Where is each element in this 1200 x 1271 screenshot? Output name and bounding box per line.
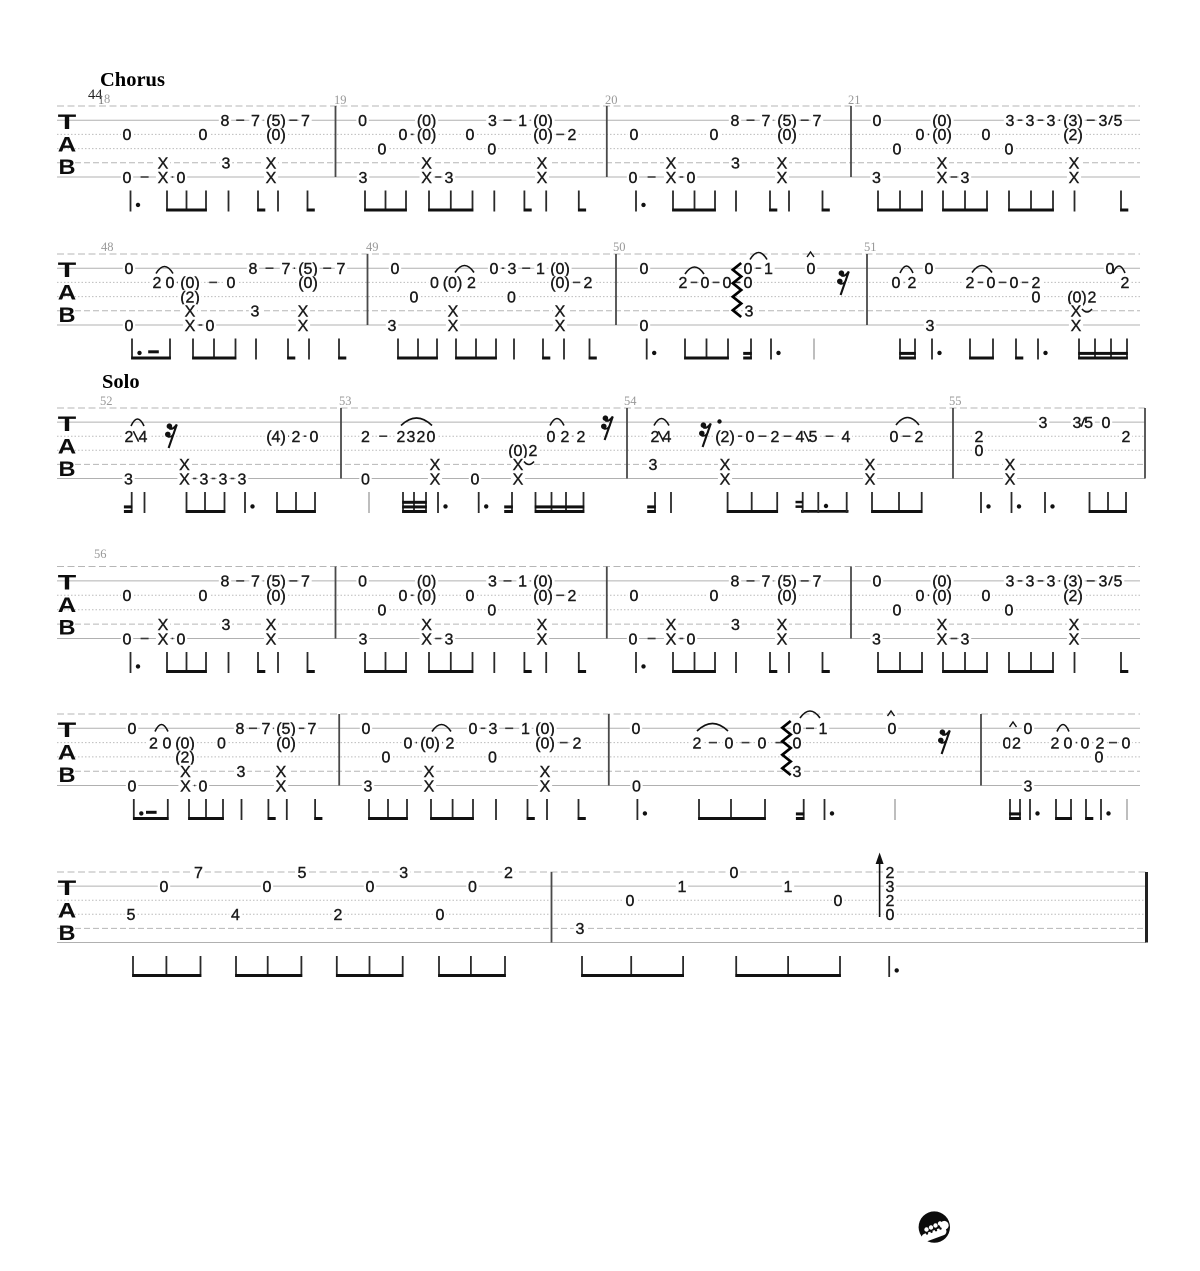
svg-text:3: 3 [872, 631, 881, 648]
svg-text:50: 50 [613, 240, 626, 254]
svg-text:X: X [865, 471, 876, 488]
svg-text:B: B [59, 616, 76, 640]
svg-text:0: 0 [487, 603, 496, 620]
svg-text:0: 0 [469, 721, 478, 738]
svg-text:3: 3 [1047, 574, 1056, 591]
svg-text:0: 0 [730, 865, 739, 882]
svg-text:54: 54 [624, 394, 637, 408]
svg-text:0: 0 [410, 289, 419, 306]
svg-text:(0): (0) [932, 127, 952, 144]
svg-text:2: 2 [577, 429, 586, 446]
svg-text:2: 2 [908, 275, 917, 292]
svg-text:1: 1 [678, 879, 687, 896]
svg-text:0: 0 [1005, 141, 1014, 158]
svg-text:X: X [937, 170, 948, 187]
svg-text:2: 2 [679, 275, 688, 292]
svg-text:(0): (0) [533, 127, 553, 144]
svg-text:7: 7 [194, 865, 203, 882]
svg-text:0: 0 [987, 275, 996, 292]
svg-text:(2): (2) [1063, 588, 1083, 605]
svg-text:X: X [777, 170, 788, 187]
svg-text:0: 0 [358, 113, 367, 130]
svg-text:X: X [555, 318, 566, 335]
svg-text:0: 0 [687, 631, 696, 648]
svg-text:0: 0 [916, 127, 925, 144]
svg-text:3: 3 [731, 156, 740, 173]
svg-text:0: 0 [547, 429, 556, 446]
svg-text:3: 3 [1024, 778, 1033, 795]
svg-text:51: 51 [864, 240, 877, 254]
svg-text:8: 8 [221, 574, 230, 591]
svg-text:X: X [540, 778, 551, 795]
svg-text:7: 7 [813, 113, 822, 130]
svg-text:3: 3 [251, 304, 260, 321]
svg-text:(4): (4) [266, 429, 286, 446]
svg-text:3: 3 [407, 429, 416, 446]
svg-text:0: 0 [404, 735, 413, 752]
svg-text:0: 0 [199, 127, 208, 144]
svg-text:X: X [537, 170, 548, 187]
svg-text:X: X [1005, 471, 1016, 488]
svg-text:0: 0 [366, 879, 375, 896]
svg-text:2: 2 [153, 275, 162, 292]
svg-text:0: 0 [125, 318, 134, 335]
svg-text:0: 0 [199, 588, 208, 605]
svg-text:X: X [298, 318, 309, 335]
svg-text:55: 55 [949, 394, 962, 408]
svg-text:8: 8 [249, 261, 258, 278]
svg-text:A: A [58, 435, 77, 459]
svg-text:A: A [58, 593, 77, 617]
svg-text:0: 0 [744, 275, 753, 292]
svg-text:(2): (2) [1063, 127, 1083, 144]
svg-text:B: B [59, 155, 76, 179]
svg-text:X: X [666, 631, 677, 648]
svg-text:0: 0 [128, 721, 137, 738]
svg-text:3: 3 [793, 764, 802, 781]
svg-text:0: 0 [391, 261, 400, 278]
svg-text:3: 3 [1026, 574, 1035, 591]
svg-text:B: B [59, 457, 76, 481]
svg-text:3: 3 [1026, 113, 1035, 130]
svg-text:Chorus: Chorus [100, 69, 165, 91]
svg-text:7: 7 [251, 113, 260, 130]
svg-text:X: X [777, 631, 788, 648]
svg-text:0: 0 [725, 735, 734, 752]
svg-text:0: 0 [892, 275, 901, 292]
svg-text:0: 0 [263, 879, 272, 896]
svg-text:0: 0 [886, 907, 895, 924]
svg-text:8: 8 [731, 574, 740, 591]
svg-text:1: 1 [819, 721, 828, 738]
svg-text:X: X [180, 778, 191, 795]
svg-text:2: 2 [584, 275, 593, 292]
svg-text:X: X [179, 471, 190, 488]
svg-text:0: 0 [378, 141, 387, 158]
svg-text:(0): (0) [266, 588, 286, 605]
svg-text:2: 2 [149, 735, 158, 752]
svg-text:7: 7 [308, 721, 317, 738]
svg-text:1: 1 [521, 721, 530, 738]
svg-text:2: 2 [1121, 275, 1130, 292]
svg-text:0: 0 [466, 127, 475, 144]
svg-text:0: 0 [916, 588, 925, 605]
svg-text:1: 1 [518, 574, 527, 591]
svg-text:(0): (0) [417, 127, 437, 144]
svg-text:0: 0 [834, 893, 843, 910]
svg-text:0: 0 [640, 261, 649, 278]
svg-text:3: 3 [399, 865, 408, 882]
svg-text:0: 0 [1010, 275, 1019, 292]
svg-text:T: T [58, 718, 77, 742]
svg-text:8: 8 [236, 721, 245, 738]
svg-text:2: 2 [915, 429, 924, 446]
svg-text:20: 20 [605, 93, 618, 107]
svg-text:3: 3 [124, 471, 133, 488]
svg-text:0: 0 [873, 113, 882, 130]
svg-text:X: X [185, 318, 196, 335]
svg-text:0: 0 [123, 127, 132, 144]
svg-text:0: 0 [723, 275, 732, 292]
svg-text:3: 3 [222, 617, 231, 634]
svg-text:X: X [448, 318, 459, 335]
svg-text:0: 0 [471, 471, 480, 488]
svg-text:0: 0 [507, 289, 516, 306]
svg-text:0: 0 [1003, 735, 1012, 752]
svg-text:2: 2 [334, 907, 343, 924]
svg-text:0: 0 [746, 429, 755, 446]
svg-text:3: 3 [1099, 113, 1108, 130]
svg-text:48: 48 [101, 240, 114, 254]
svg-text:0: 0 [177, 170, 186, 187]
svg-text:2: 2 [1122, 429, 1131, 446]
svg-text:0: 0 [1102, 415, 1111, 432]
svg-text:0: 0 [382, 750, 391, 767]
svg-text:3: 3 [649, 457, 658, 474]
svg-text:3: 3 [576, 921, 585, 938]
svg-text:0: 0 [630, 588, 639, 605]
svg-text:(0): (0) [932, 588, 952, 605]
svg-text:A: A [58, 741, 77, 765]
svg-text:(0): (0) [550, 275, 570, 292]
svg-text:(0): (0) [777, 127, 797, 144]
svg-text:5: 5 [298, 865, 307, 882]
svg-text:0: 0 [632, 778, 641, 795]
svg-text:3: 3 [488, 113, 497, 130]
svg-text:2: 2 [568, 588, 577, 605]
svg-text:4: 4 [796, 429, 805, 446]
svg-text:3: 3 [961, 631, 970, 648]
svg-text:5: 5 [1114, 574, 1123, 591]
svg-text:T: T [58, 258, 77, 282]
svg-text:T: T [58, 571, 77, 595]
svg-text:0: 0 [399, 588, 408, 605]
svg-text:4: 4 [139, 429, 148, 446]
svg-text:0: 0 [1024, 721, 1033, 738]
svg-text:(0): (0) [276, 735, 296, 752]
svg-text:2: 2 [561, 429, 570, 446]
svg-text:0: 0 [1106, 261, 1115, 278]
svg-text:X: X [720, 471, 731, 488]
svg-text:2: 2 [568, 127, 577, 144]
svg-text:0: 0 [430, 275, 439, 292]
svg-text:0: 0 [632, 721, 641, 738]
svg-text:0: 0 [893, 603, 902, 620]
svg-text:0: 0 [227, 275, 236, 292]
svg-text:3: 3 [359, 170, 368, 187]
svg-text:3: 3 [219, 471, 228, 488]
svg-text:0: 0 [125, 261, 134, 278]
svg-text:7: 7 [301, 574, 310, 591]
svg-text:3: 3 [200, 471, 209, 488]
svg-text:0: 0 [177, 631, 186, 648]
svg-text:X: X [158, 631, 169, 648]
svg-text:1: 1 [784, 879, 793, 896]
svg-text:X: X [276, 778, 287, 795]
svg-text:3: 3 [489, 721, 498, 738]
svg-text:0: 0 [758, 735, 767, 752]
svg-text:1: 1 [536, 261, 545, 278]
svg-text:0: 0 [893, 141, 902, 158]
svg-text:0: 0 [710, 127, 719, 144]
svg-text:0: 0 [982, 127, 991, 144]
svg-text:0: 0 [890, 429, 899, 446]
svg-text:0: 0 [925, 261, 934, 278]
svg-text:(0): (0) [535, 735, 555, 752]
svg-text:3: 3 [222, 156, 231, 173]
svg-text:0: 0 [888, 721, 897, 738]
svg-text:5: 5 [809, 429, 818, 446]
svg-text:0: 0 [361, 471, 370, 488]
svg-text:(0): (0) [266, 127, 286, 144]
svg-text:(0): (0) [417, 588, 437, 605]
svg-text:0: 0 [399, 127, 408, 144]
svg-text:0: 0 [687, 170, 696, 187]
svg-text:3: 3 [1006, 113, 1015, 130]
svg-text:T: T [58, 110, 77, 134]
svg-text:0: 0 [358, 574, 367, 591]
svg-text:0: 0 [1064, 735, 1073, 752]
svg-text:7: 7 [762, 113, 771, 130]
svg-text:8: 8 [104, 92, 110, 106]
svg-text:0: 0 [701, 275, 710, 292]
svg-text:X: X [513, 471, 524, 488]
svg-text:Solo: Solo [102, 371, 140, 393]
svg-text:X: X [666, 170, 677, 187]
svg-text:2: 2 [1051, 735, 1060, 752]
svg-text:49: 49 [366, 240, 379, 254]
svg-text:0: 0 [1081, 735, 1090, 752]
svg-text:1: 1 [764, 261, 773, 278]
svg-text:0: 0 [490, 261, 499, 278]
svg-text:0: 0 [975, 443, 984, 460]
svg-text:0: 0 [128, 778, 137, 795]
svg-text:0: 0 [362, 721, 371, 738]
svg-text:3: 3 [238, 471, 247, 488]
svg-text:0: 0 [793, 735, 802, 752]
svg-text:7: 7 [813, 574, 822, 591]
svg-text:X: X [430, 471, 441, 488]
svg-text:52: 52 [100, 394, 113, 408]
svg-text:X: X [266, 631, 277, 648]
svg-text:X: X [1069, 170, 1080, 187]
svg-text:0: 0 [199, 778, 208, 795]
svg-text:0: 0 [466, 588, 475, 605]
svg-text:2: 2 [504, 865, 513, 882]
svg-text:0: 0 [1005, 603, 1014, 620]
svg-text:7: 7 [282, 261, 291, 278]
svg-text:8: 8 [731, 113, 740, 130]
svg-text:0: 0 [873, 574, 882, 591]
svg-text:0: 0 [1122, 735, 1131, 752]
svg-text:T: T [58, 412, 77, 436]
svg-text:0: 0 [630, 127, 639, 144]
svg-text:0: 0 [166, 275, 175, 292]
svg-text:B: B [59, 763, 76, 787]
svg-text:3: 3 [745, 304, 754, 321]
svg-text:3: 3 [1073, 415, 1082, 432]
svg-text:0: 0 [123, 170, 132, 187]
svg-text:8: 8 [221, 113, 230, 130]
svg-text:X: X [424, 778, 435, 795]
svg-text:3: 3 [508, 261, 517, 278]
svg-text:0: 0 [629, 631, 638, 648]
svg-text:2: 2 [693, 735, 702, 752]
svg-text:0: 0 [1032, 289, 1041, 306]
svg-text:2: 2 [397, 429, 406, 446]
svg-text:2: 2 [771, 429, 780, 446]
svg-text:0: 0 [378, 603, 387, 620]
svg-text:3: 3 [445, 631, 454, 648]
svg-text:7: 7 [337, 261, 346, 278]
svg-text:5: 5 [1084, 415, 1093, 432]
svg-text:3: 3 [926, 318, 935, 335]
svg-text:3: 3 [388, 318, 397, 335]
svg-text:2: 2 [446, 735, 455, 752]
svg-text:0: 0 [427, 429, 436, 446]
svg-text:2: 2 [529, 443, 538, 460]
svg-text:3: 3 [364, 778, 373, 795]
svg-text:2: 2 [1012, 735, 1021, 752]
svg-text:3: 3 [872, 170, 881, 187]
svg-text:X: X [1069, 631, 1080, 648]
svg-text:3: 3 [237, 764, 246, 781]
svg-text:0: 0 [1095, 750, 1104, 767]
svg-text:2: 2 [125, 429, 134, 446]
svg-text:0: 0 [710, 588, 719, 605]
svg-text:(0): (0) [443, 275, 463, 292]
svg-text:5: 5 [127, 907, 136, 924]
svg-text:3: 3 [1047, 113, 1056, 130]
svg-text:0: 0 [626, 893, 635, 910]
svg-text:2: 2 [573, 735, 582, 752]
svg-text:0: 0 [160, 879, 169, 896]
svg-text:3: 3 [961, 170, 970, 187]
svg-text:X: X [421, 170, 432, 187]
svg-text:53: 53 [339, 394, 352, 408]
svg-text:5: 5 [1114, 113, 1123, 130]
svg-text:X: X [937, 631, 948, 648]
svg-text:0: 0 [982, 588, 991, 605]
svg-text:1: 1 [518, 113, 527, 130]
svg-text:0: 0 [123, 588, 132, 605]
svg-text:0: 0 [206, 318, 215, 335]
svg-text:56: 56 [94, 547, 107, 561]
svg-text:0: 0 [629, 170, 638, 187]
svg-text:3: 3 [359, 631, 368, 648]
svg-text:7: 7 [301, 113, 310, 130]
svg-text:2: 2 [292, 429, 301, 446]
svg-text:X: X [421, 631, 432, 648]
svg-text:3: 3 [1006, 574, 1015, 591]
svg-text:0: 0 [217, 735, 226, 752]
svg-text:3: 3 [731, 617, 740, 634]
svg-text:B: B [59, 921, 76, 945]
svg-text:0: 0 [488, 750, 497, 767]
svg-text:(0): (0) [533, 588, 553, 605]
svg-text:A: A [58, 899, 77, 923]
svg-text:0: 0 [640, 318, 649, 335]
svg-text:4: 4 [663, 429, 672, 446]
svg-text:(0): (0) [420, 735, 440, 752]
svg-text:2: 2 [361, 429, 370, 446]
svg-text:3: 3 [1099, 574, 1108, 591]
svg-text:7: 7 [251, 574, 260, 591]
svg-text:7: 7 [262, 721, 271, 738]
svg-text:A: A [58, 281, 77, 305]
svg-text:2: 2 [417, 429, 426, 446]
svg-text:0: 0 [807, 261, 816, 278]
svg-text:7: 7 [762, 574, 771, 591]
svg-text:21: 21 [848, 93, 861, 107]
svg-text:3: 3 [445, 170, 454, 187]
svg-text:X: X [1071, 318, 1082, 335]
svg-text:0: 0 [163, 735, 172, 752]
svg-text:A: A [58, 133, 77, 157]
svg-text:2: 2 [467, 275, 476, 292]
svg-text:(0): (0) [777, 588, 797, 605]
svg-text:T: T [58, 876, 77, 900]
svg-text:(0): (0) [298, 275, 318, 292]
svg-text:0: 0 [123, 631, 132, 648]
svg-text:19: 19 [334, 93, 347, 107]
svg-text:X: X [537, 631, 548, 648]
svg-text:3: 3 [1039, 415, 1048, 432]
svg-text:0: 0 [310, 429, 319, 446]
svg-text:(2): (2) [715, 429, 735, 446]
svg-text:2: 2 [966, 275, 975, 292]
svg-text:0: 0 [436, 907, 445, 924]
svg-text:2: 2 [1088, 289, 1097, 306]
svg-text:3: 3 [488, 574, 497, 591]
svg-text:B: B [59, 303, 76, 327]
svg-text:0: 0 [487, 141, 496, 158]
svg-text:X: X [266, 170, 277, 187]
svg-text:X: X [158, 170, 169, 187]
svg-text:4: 4 [231, 907, 240, 924]
svg-text:4: 4 [842, 429, 851, 446]
svg-text:0: 0 [468, 879, 477, 896]
